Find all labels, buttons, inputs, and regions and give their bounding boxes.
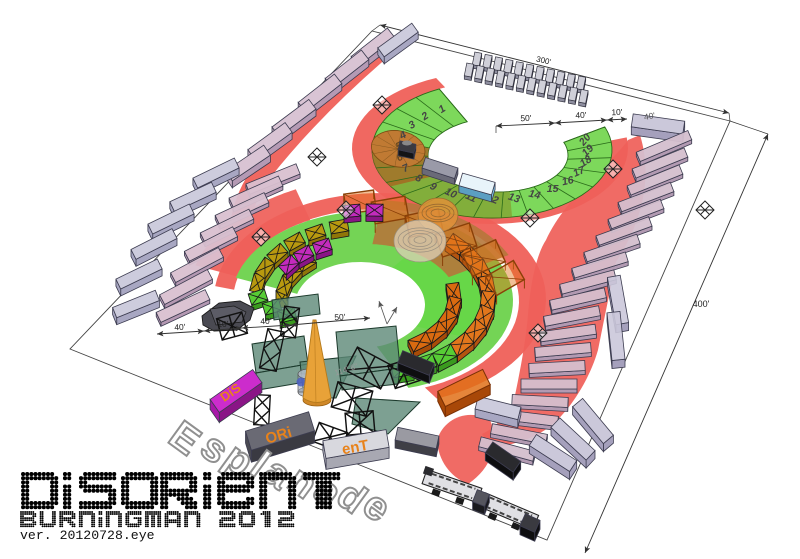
svg-text:50': 50': [520, 113, 532, 123]
svg-text:40': 40': [260, 316, 272, 327]
svg-text:ver. 20120728.eye: ver. 20120728.eye: [20, 528, 155, 543]
svg-text:50': 50': [334, 312, 346, 323]
svg-text:40': 40': [643, 110, 656, 122]
svg-text:400': 400': [693, 299, 710, 309]
svg-text:10': 10': [217, 319, 229, 330]
svg-text:40': 40': [575, 110, 587, 120]
svg-text:15: 15: [547, 183, 559, 195]
svg-text:10': 10': [611, 107, 623, 117]
svg-text:40': 40': [174, 322, 186, 333]
